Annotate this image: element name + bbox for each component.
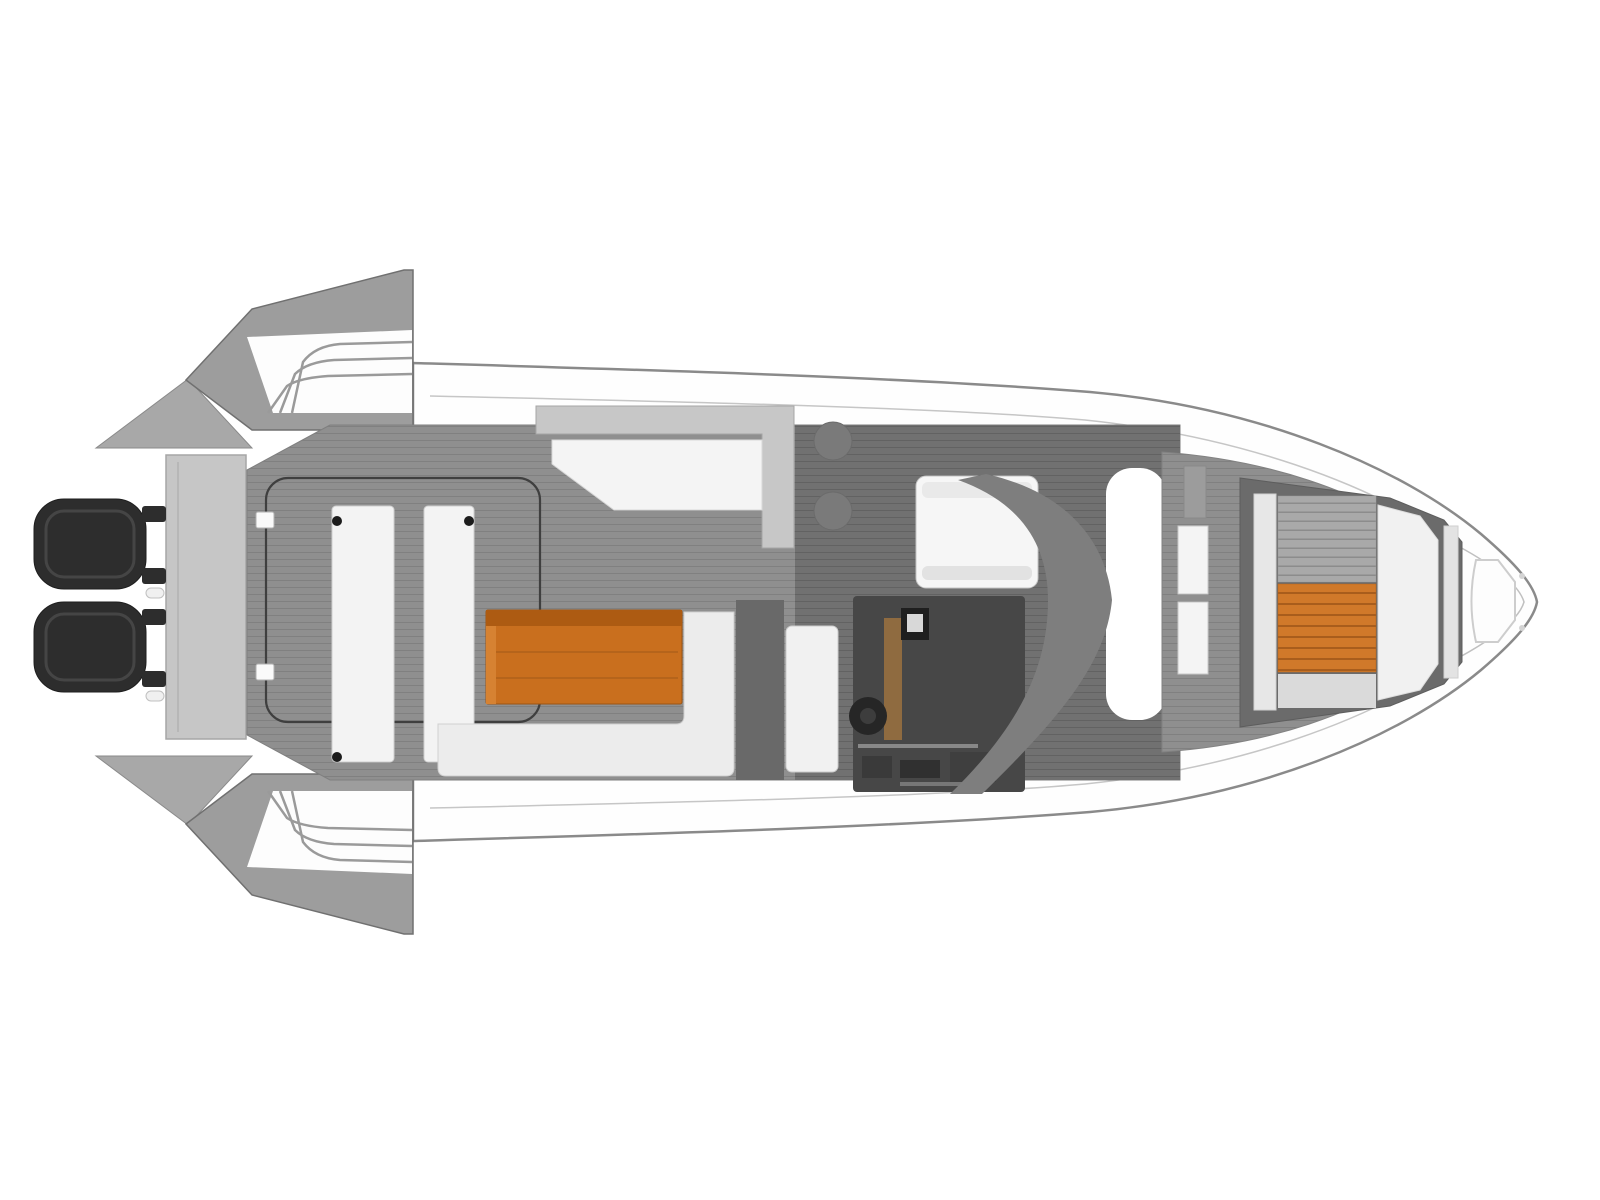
locker-hinge-dot — [1519, 573, 1525, 579]
motor-bracket — [142, 671, 166, 687]
outboard-motor-port — [34, 499, 166, 598]
bench-hinge-dot — [332, 516, 342, 526]
console-wood-trim — [884, 618, 902, 740]
bar-stool — [814, 492, 852, 530]
bow-step-cushion — [1178, 602, 1208, 674]
sofa-gap-shadow — [736, 600, 784, 780]
deck-cleat — [256, 512, 274, 528]
deck-cleat — [256, 664, 274, 680]
console-trim-line — [858, 744, 978, 748]
motor-cylinder — [146, 588, 164, 598]
motor-bracket — [142, 609, 166, 625]
sunpad-left-trim — [1254, 494, 1276, 710]
helm-seat-shade — [922, 566, 1032, 580]
stern-group — [34, 455, 246, 739]
console-module — [862, 756, 892, 778]
boat-deck-plan — [0, 0, 1600, 1200]
locker-hinge-dot — [1519, 625, 1525, 631]
anchor-locker-outline — [1472, 560, 1516, 642]
bar-stool — [814, 422, 852, 460]
bow-cushion-white — [1378, 505, 1438, 700]
sunpad-lower-pad — [1278, 674, 1376, 708]
side-walkway — [1106, 468, 1166, 720]
cockpit-table — [486, 610, 682, 704]
motor-cylinder — [146, 691, 164, 701]
seat-back-panel — [786, 626, 838, 772]
bow-backrest-panel — [1444, 526, 1458, 678]
bow-step-cushion — [1178, 526, 1208, 594]
motor-bracket — [142, 568, 166, 584]
outboard-motor-starboard — [34, 602, 166, 701]
bench-hinge-dot — [332, 752, 342, 762]
bow-step-gray — [1184, 466, 1206, 518]
bench-hinge-dot — [464, 516, 474, 526]
steering-wheel-hub — [860, 708, 876, 724]
sunpad-slatted-gray — [1278, 496, 1376, 582]
console-module — [900, 760, 940, 778]
aft-bench-left — [332, 506, 394, 762]
motor-bracket — [142, 506, 166, 522]
deck-plan-svg — [0, 0, 1600, 1200]
console-screen — [907, 614, 923, 632]
sunpad-teak-insert — [1278, 584, 1376, 672]
